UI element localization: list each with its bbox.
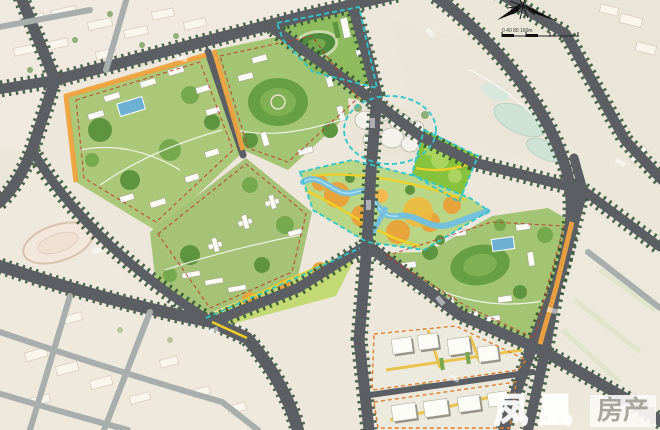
scale-label: 0 40 80 160m: [502, 28, 533, 34]
watermark-brand: 凤凰: [494, 394, 582, 428]
watermark-badge: 房产: [590, 395, 656, 427]
swimming-pool: [491, 237, 514, 252]
watermark: 凤凰 房产: [494, 394, 656, 428]
master-plan-canvas: 0 40 80 160m: [0, 0, 660, 430]
master-plan-screenshot: 0 40 80 160m 凤凰 房产: [0, 0, 660, 430]
